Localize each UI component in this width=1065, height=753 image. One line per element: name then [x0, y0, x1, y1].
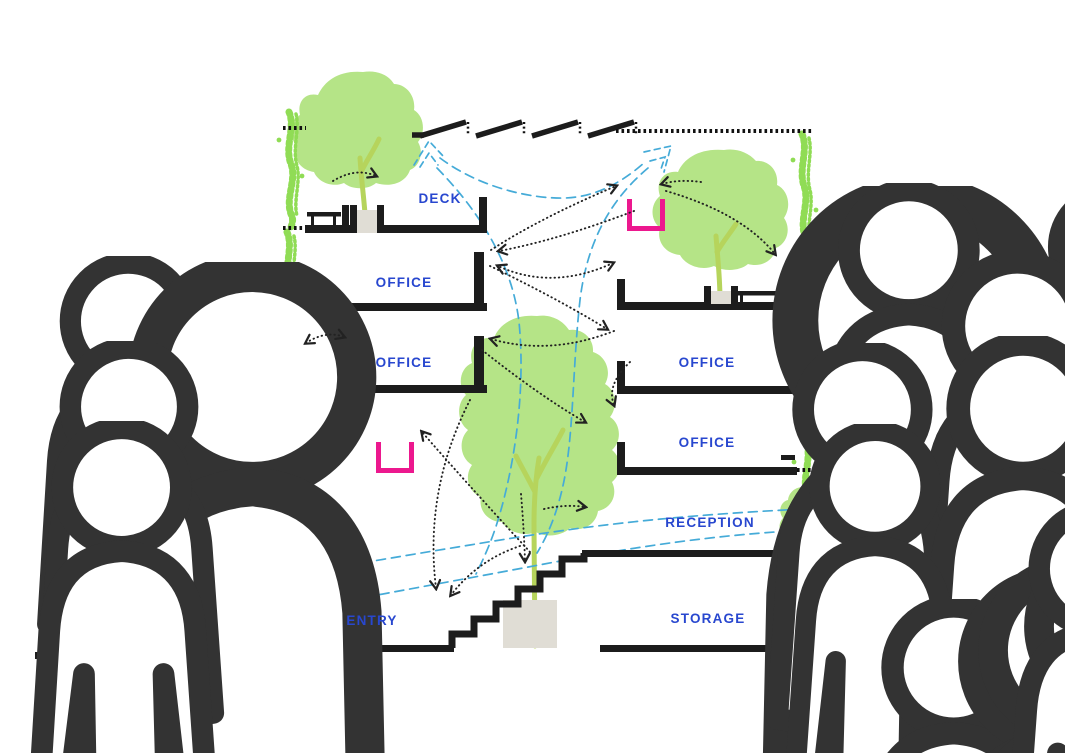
wall-stub: [781, 455, 795, 460]
deck-tree-canopy: [291, 72, 423, 189]
office-mid-right-floor: [617, 279, 797, 310]
deck-parapet-wall: [479, 197, 487, 233]
office-tree: [653, 149, 789, 300]
person-office-lower-right: [39, 428, 207, 753]
section-diagram-canvas: DECK OFFICE OFFICE OFFICE OFFICE RECEPTI…: [0, 0, 1065, 753]
label-office-upper-left: OFFICE: [376, 275, 433, 290]
deck-bench: [307, 212, 341, 225]
label-office-mid-left: OFFICE: [376, 355, 433, 370]
label-reception: RECEPTION: [665, 515, 755, 530]
section-diagram: DECK OFFICE OFFICE OFFICE OFFICE RECEPTI…: [0, 0, 1065, 753]
sawtooth-roof: [412, 122, 813, 136]
label-entry: ENTRY: [346, 613, 397, 628]
label-storage: STORAGE: [671, 611, 746, 626]
airflow-sag-line: [440, 158, 645, 198]
label-deck: DECK: [418, 191, 461, 206]
label-office-mid-right: OFFICE: [679, 355, 736, 370]
label-office-lower-right: OFFICE: [679, 435, 736, 450]
office-tree-canopy: [653, 149, 789, 269]
magenta-planter-lower: [376, 442, 414, 473]
